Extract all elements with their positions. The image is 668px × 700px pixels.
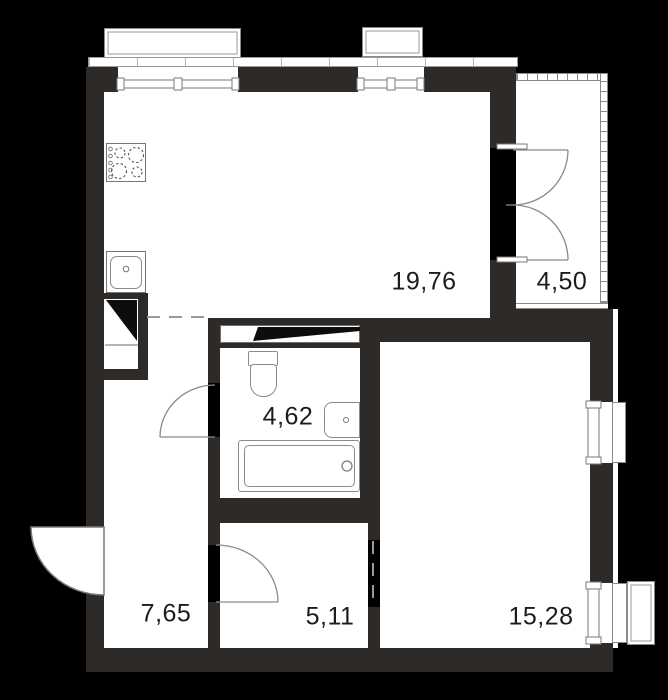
- wall: [424, 67, 516, 92]
- room-label-living-kitchen: 19,76: [391, 268, 456, 297]
- shaft-frame: [138, 293, 148, 380]
- room-label-bedroom: 15,28: [508, 603, 573, 632]
- wall: [208, 348, 220, 383]
- wall: [360, 318, 380, 523]
- wall: [208, 523, 220, 545]
- bathroom-sink-icon: [324, 402, 360, 438]
- room-label-corridor: 5,11: [306, 603, 355, 632]
- wall: [208, 602, 220, 648]
- window-opening: [590, 583, 613, 643]
- vent-shaft: [104, 299, 138, 369]
- stove-icon: [106, 143, 146, 182]
- room-label-hallway: 7,65: [141, 600, 192, 629]
- balcony-slab-right: [362, 27, 423, 57]
- wall: [208, 437, 220, 498]
- kitchen-sink-basin: [110, 256, 142, 289]
- wall: [490, 260, 516, 318]
- room-label-bathroom: 4,62: [263, 403, 314, 432]
- wall: [380, 318, 590, 342]
- wall: [238, 67, 358, 92]
- wall: [490, 92, 516, 148]
- ac-basket: [627, 581, 655, 645]
- duct-channel: [220, 325, 360, 343]
- window-opening: [118, 67, 238, 92]
- shaft-frame: [104, 369, 148, 380]
- wall: [86, 648, 613, 672]
- window-opening: [590, 402, 613, 463]
- wall: [590, 643, 613, 672]
- window-sill: [612, 402, 626, 463]
- wall: [516, 309, 590, 318]
- wall-stub: [368, 607, 380, 648]
- room-label-loggia: 4,50: [537, 268, 588, 297]
- wall: [590, 463, 613, 583]
- toilet-bowl-icon: [250, 364, 277, 397]
- facade-ledge: [88, 57, 518, 67]
- entrance-opening: [86, 527, 104, 592]
- wall: [208, 498, 380, 523]
- wall: [590, 309, 613, 402]
- window-opening: [358, 67, 424, 92]
- wall-stub: [368, 523, 380, 540]
- floor-plan: 19,76 4,50 4,62 7,65 5,11 15,28: [0, 0, 668, 700]
- bathtub-inner: [244, 445, 355, 487]
- loggia-glazing-right: [600, 73, 608, 303]
- loggia-glazing-top: [516, 73, 608, 81]
- balcony-slab-left: [104, 28, 241, 58]
- wall: [86, 67, 104, 527]
- window-sill: [612, 583, 627, 643]
- loggia-edge: [516, 303, 608, 309]
